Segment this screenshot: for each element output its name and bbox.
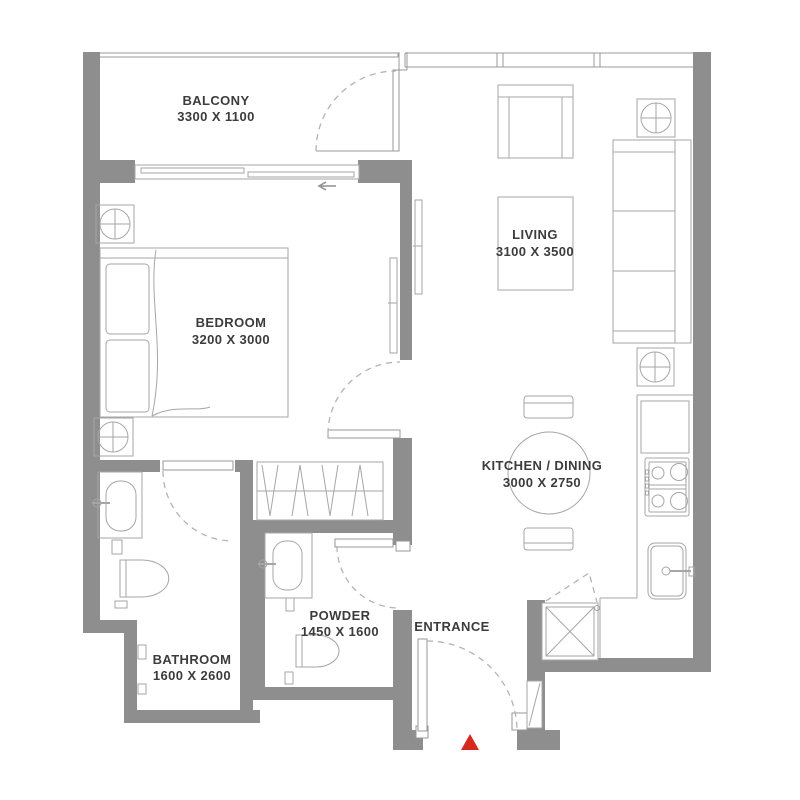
kitchen-counter — [600, 395, 693, 658]
toilet-icon — [120, 560, 169, 597]
balcony-label: BALCONY — [182, 93, 249, 108]
ceiling-unit-icon — [96, 205, 134, 243]
powder-door — [335, 539, 410, 608]
armchair — [498, 85, 573, 158]
dining-chair — [524, 396, 573, 418]
entrance: ENTRANCE — [414, 619, 527, 750]
living-dims: 3100 X 3500 — [496, 244, 574, 259]
wall-left-outer — [83, 52, 100, 632]
wall-powder-left — [253, 520, 265, 700]
floor-plan: BALCONY 3300 X 1100 — [0, 0, 800, 800]
entry-side-panel — [527, 681, 542, 728]
dining-chair — [524, 528, 573, 550]
wall-bathroom-right — [240, 460, 253, 710]
bathroom-door — [163, 461, 233, 541]
wall-panel — [388, 258, 397, 353]
wall-bathroom-bottom — [124, 710, 260, 723]
wall-balcony-bottom-left — [83, 160, 135, 183]
wall-right-outer — [693, 52, 711, 672]
wall-left-step-vertical — [124, 620, 137, 723]
wall-panel — [413, 200, 422, 294]
living-label: LIVING — [512, 227, 558, 242]
ceiling-unit-icon — [637, 99, 675, 137]
entrance-marker-icon — [461, 734, 479, 750]
living-window — [405, 53, 693, 67]
entrance-label: ENTRANCE — [414, 619, 489, 634]
wardrobe — [257, 462, 383, 520]
fridge — [641, 401, 689, 453]
bathroom: BATHROOM 1600 X 2600 — [92, 461, 233, 694]
bedroom-dims: 3200 X 3000 — [192, 332, 270, 347]
sofa — [613, 140, 691, 343]
bathroom-label: BATHROOM — [153, 652, 232, 667]
dining-table — [508, 432, 590, 514]
wall-powder-top — [253, 520, 395, 533]
living-room: LIVING 3100 X 3500 — [413, 85, 691, 386]
stove-icon — [645, 458, 689, 516]
bedroom: BEDROOM 3200 X 3000 — [94, 205, 400, 456]
sliding-direction-arrow-icon — [319, 182, 336, 190]
bathroom-dims: 1600 X 2600 — [153, 668, 231, 683]
ceiling-unit-icon — [637, 348, 674, 386]
balcony-door — [316, 52, 407, 151]
toilet-icon — [296, 635, 339, 667]
powder-label: POWDER — [310, 608, 371, 623]
floor-plan-page: BALCONY 3300 X 1100 — [0, 0, 800, 800]
walls — [83, 52, 711, 750]
powder-sink-icon — [258, 533, 312, 598]
wall-wardrobe-right-pillar — [393, 438, 412, 528]
powder-dims: 1450 X 1600 — [301, 624, 379, 639]
balcony-sliding-door — [135, 165, 359, 179]
wall-fixture — [285, 598, 294, 684]
kitchen-sink-icon — [648, 543, 694, 599]
kitchen-dims: 3000 X 2750 — [503, 475, 581, 490]
wall-bedroom-living — [400, 160, 412, 360]
wall-powder-bottom — [253, 687, 412, 700]
balcony-dims: 3300 X 1100 — [177, 109, 254, 124]
wall-powder-right-bottom — [393, 610, 412, 750]
kitchen-label: KITCHEN / DINING — [482, 458, 603, 473]
balcony-railing — [100, 53, 398, 57]
entrance-door — [416, 639, 527, 738]
bedroom-label: BEDROOM — [196, 315, 267, 330]
wall-bedroom-bottom — [88, 460, 160, 472]
powder-room: POWDER 1450 X 1600 — [258, 533, 410, 684]
bedroom-door — [328, 362, 400, 438]
